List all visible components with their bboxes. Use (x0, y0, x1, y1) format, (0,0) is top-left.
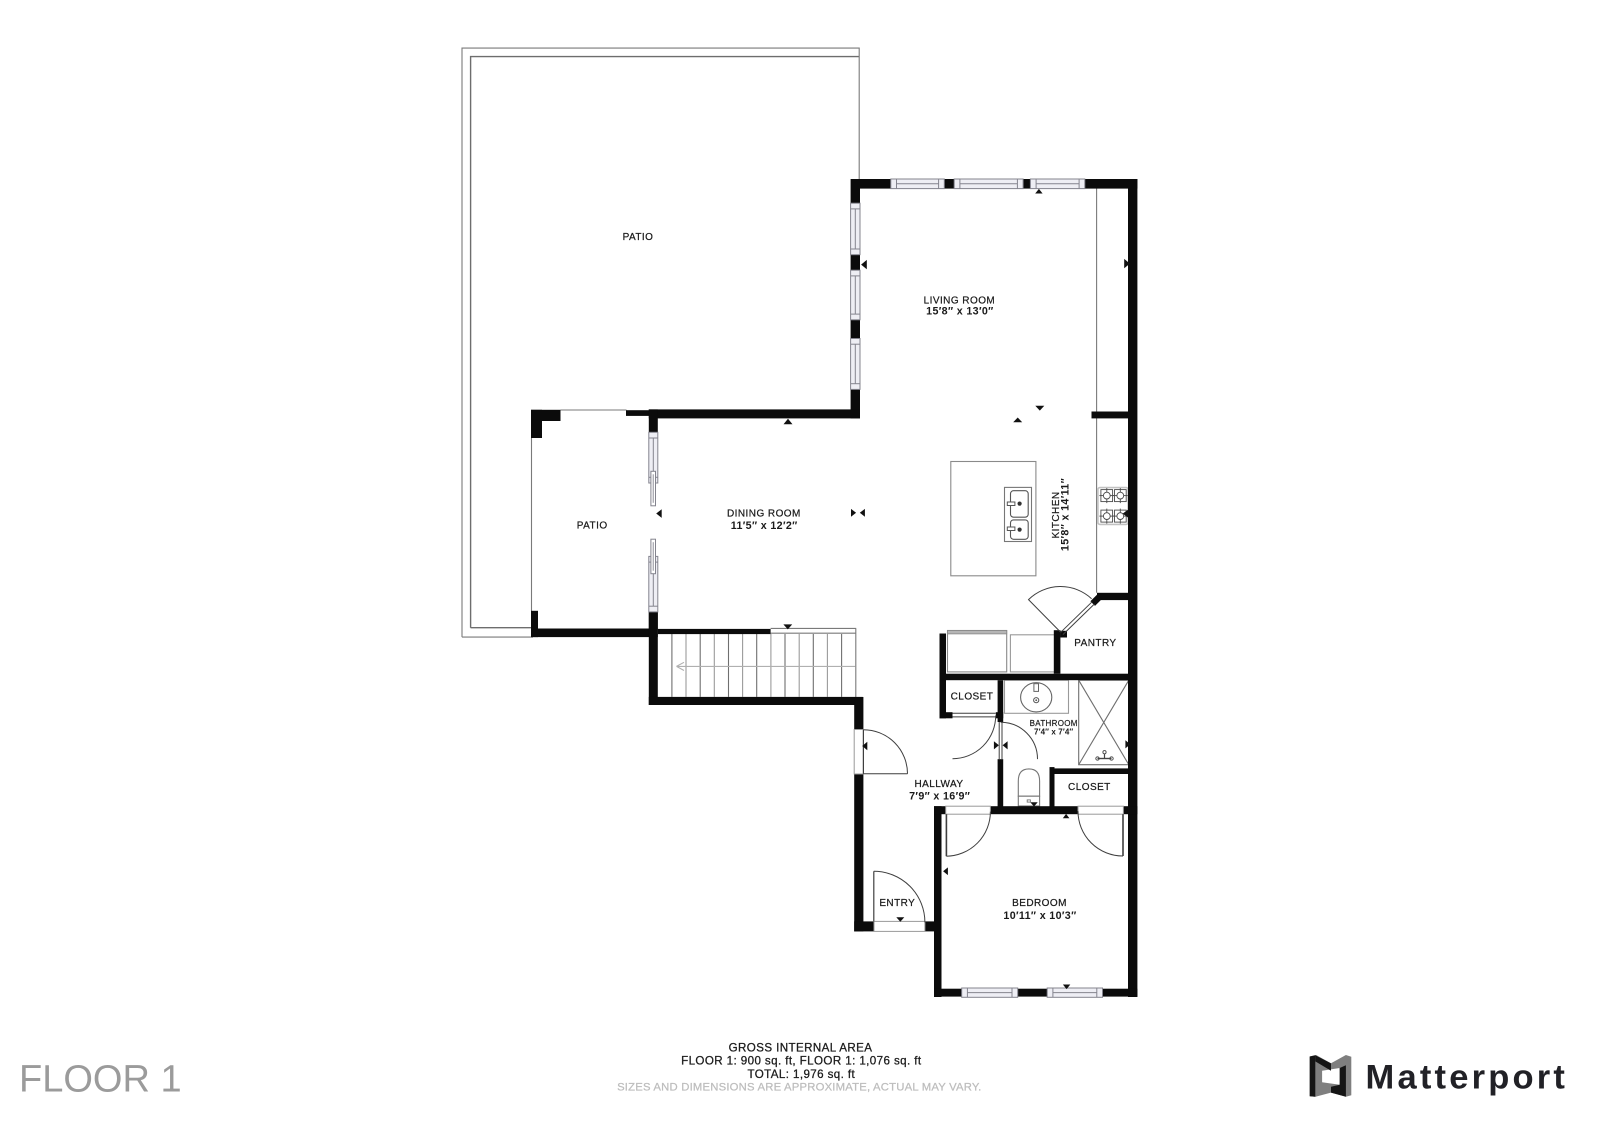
svg-text:7′9″ x 16′9″: 7′9″ x 16′9″ (909, 790, 970, 802)
svg-text:FLOOR 1: 900 sq. ft, FLOOR 1:: FLOOR 1: 900 sq. ft, FLOOR 1: 1,076 sq. … (681, 1055, 922, 1068)
svg-text:15′8″ x 14′11″: 15′8″ x 14′11″ (1060, 478, 1072, 551)
svg-text:GROSS INTERNAL AREA: GROSS INTERNAL AREA (729, 1041, 873, 1054)
svg-text:15′8″ x 13′0″: 15′8″ x 13′0″ (926, 306, 993, 318)
svg-text:DINING ROOM: DINING ROOM (727, 508, 801, 519)
svg-text:7′4″ x 7′4″: 7′4″ x 7′4″ (1034, 727, 1073, 736)
svg-text:PANTRY: PANTRY (1074, 638, 1116, 649)
svg-text:CLOSET: CLOSET (1068, 782, 1111, 793)
svg-text:Matterport: Matterport (1366, 1058, 1569, 1096)
svg-text:CLOSET: CLOSET (951, 692, 994, 703)
svg-text:FLOOR 1: FLOOR 1 (19, 1059, 182, 1101)
svg-text:BEDROOM: BEDROOM (1012, 898, 1067, 909)
svg-text:TOTAL: 1,976 sq. ft: TOTAL: 1,976 sq. ft (747, 1068, 855, 1081)
svg-text:PATIO: PATIO (623, 232, 654, 243)
svg-text:HALLWAY: HALLWAY (914, 779, 963, 790)
svg-text:SIZES AND DIMENSIONS ARE APPRO: SIZES AND DIMENSIONS ARE APPROXIMATE, AC… (617, 1082, 981, 1094)
svg-text:11′5″ x 12′2″: 11′5″ x 12′2″ (731, 520, 798, 532)
svg-text:10′11″ x 10′3″: 10′11″ x 10′3″ (1003, 910, 1076, 922)
svg-text:ENTRY: ENTRY (879, 898, 915, 909)
svg-text:PATIO: PATIO (577, 520, 608, 531)
